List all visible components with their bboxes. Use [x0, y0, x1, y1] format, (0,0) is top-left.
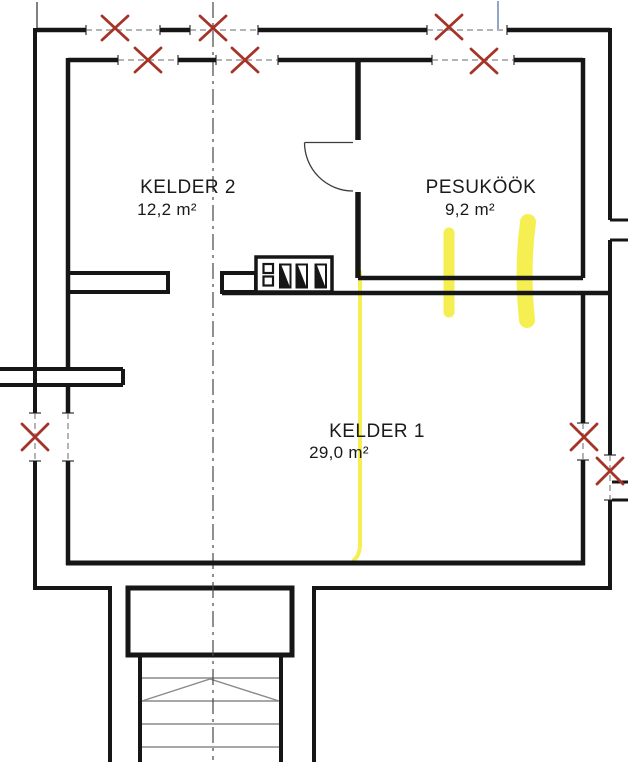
- panel-switch-icon: [264, 277, 274, 286]
- highlight-stroke-right: [524, 222, 528, 320]
- room-label-kelder1: KELDER 1: [329, 421, 425, 442]
- wall-kelder2-bottom: [68, 273, 168, 292]
- floor-plan: KELDER 2 12,2 m² PESUKÖÖK 9,2 m² KELDER …: [0, 0, 628, 762]
- panel-switch-icon: [264, 264, 274, 273]
- room-area-pesukook: 9,2 m²: [445, 200, 495, 219]
- room-label-kelder2: KELDER 2: [140, 177, 236, 198]
- room-area-kelder1: 29,0 m²: [309, 443, 369, 462]
- stair-landing: [128, 588, 292, 655]
- room-label-pesukook: PESUKÖÖK: [426, 177, 537, 198]
- room-area-kelder2: 12,2 m²: [137, 200, 197, 219]
- wall-middle-segment: [222, 273, 256, 292]
